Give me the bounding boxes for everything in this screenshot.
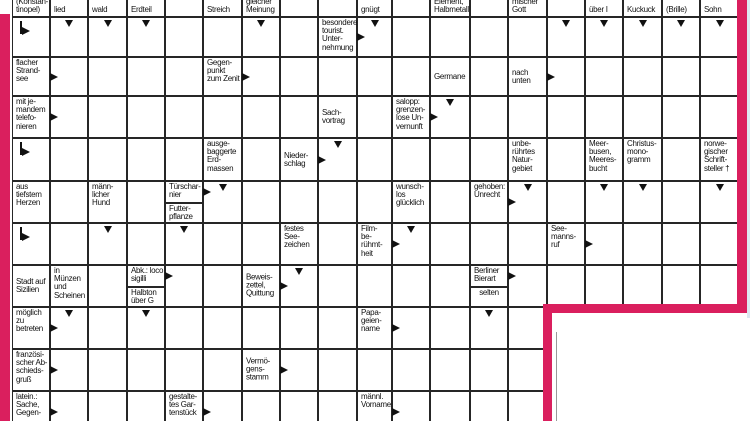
clue-cell-r7c2: inMünzenundScheinen (50, 265, 88, 307)
clue-cell-r9c7: Vermö-gens-stamm (242, 349, 280, 391)
answer-cell-r1c11[interactable] (392, 17, 430, 57)
clue-text: gleicherMeinung (246, 0, 279, 14)
answer-cell-r2c11[interactable] (392, 57, 430, 96)
answer-cell-r10c7[interactable] (242, 391, 280, 421)
down-arrow-icon (219, 184, 227, 191)
clue-cell-r4c16: Meer-busen,Meeres-bucht (585, 138, 623, 181)
answer-cell-r4c7[interactable] (242, 138, 280, 181)
answer-cell-r9c3[interactable] (88, 349, 127, 391)
answer-cell-r2c5[interactable] (165, 57, 203, 96)
clue-cell-r4c8: Nieder-schlag (280, 138, 318, 181)
answer-cell-r6c7[interactable] (242, 223, 280, 265)
right-arrow-icon (547, 73, 555, 81)
right-arrow-icon (508, 198, 516, 206)
answer-cell-r4c3[interactable] (88, 138, 127, 181)
answer-cell-r5c10[interactable] (357, 181, 392, 223)
down-arrow-icon (562, 20, 570, 27)
down-arrow-icon (716, 20, 724, 27)
clue-text: salopp:grenzen-lose Un-vernunft (396, 98, 429, 131)
clue-cell-r5c3: männ-licherHund (88, 181, 127, 223)
answer-cell-r10c11[interactable] (392, 391, 430, 421)
clue-text: Gegen-punktzum Zenit (207, 59, 241, 84)
split-clue-top: Abk.: locosigilli (128, 266, 164, 286)
down-arrow-icon (485, 310, 493, 317)
answer-cell-r7c18[interactable] (662, 265, 700, 307)
clue-text: besonderetourist.Unter-nehmung (322, 19, 356, 52)
clue-text: flacherStrand-see (16, 59, 49, 84)
answer-cell-r6c1[interactable] (12, 223, 50, 265)
answer-cell-r8c5[interactable] (165, 307, 203, 349)
clue-cell-r5c11: wunsch-losglücklich (392, 181, 430, 223)
answer-cell-r5c7[interactable] (242, 181, 280, 223)
clue-cell-r3c1: mit je-mandemtelefo-nieren (12, 96, 50, 138)
answer-cell-r7c9[interactable] (318, 265, 357, 307)
clue-text: mit je-mandemtelefo-nieren (16, 98, 49, 131)
page-fold-line (556, 332, 557, 421)
clue-text: Germane (434, 72, 469, 80)
answer-cell-r5c16[interactable] (585, 181, 623, 223)
down-arrow-icon (407, 226, 415, 233)
clue-text: wunsch-losglücklich (396, 183, 429, 208)
answer-cell-r3c17[interactable] (623, 96, 662, 138)
clue-cell-r0c12: Element,Halbmetall (430, 0, 470, 17)
answer-cell-r6c6[interactable] (203, 223, 242, 265)
answer-cell-r1c17[interactable] (623, 17, 662, 57)
answer-cell-r10c13[interactable] (470, 391, 508, 421)
clue-cell-r4c14: unbe-rührtesNatur-gebiet (508, 138, 547, 181)
clue-cell-r0c10: gnügt (357, 0, 392, 17)
answer-cell-r10c6[interactable] (203, 391, 242, 421)
clue-cell-r0c7: gleicherMeinung (242, 0, 280, 17)
down-arrow-icon (104, 20, 112, 27)
clue-cell-r4c19: norwe-gischerSchrift-steller † (700, 138, 740, 181)
answer-cell-r2c16[interactable] (585, 57, 623, 96)
answer-cell-r1c2[interactable] (50, 17, 88, 57)
clue-text: latein.:Sache,Gegen- (16, 393, 49, 418)
answer-cell-r7c11[interactable] (392, 265, 430, 307)
right-arrow-icon (165, 272, 173, 280)
answer-cell-r10c3[interactable] (88, 391, 127, 421)
clue-cell-r0c19: Sohn (700, 0, 740, 17)
puzzle-border-right (737, 0, 747, 313)
answer-cell-r8c6[interactable] (203, 307, 242, 349)
right-arrow-icon (280, 282, 288, 290)
clue-cell-r2c1: flacherStrand-see (12, 57, 50, 96)
clue-text: norwe-gischerSchrift-steller † (704, 140, 739, 173)
clue-cell-r1c9: besonderetourist.Unter-nehmung (318, 17, 357, 57)
answer-cell-r5c4[interactable] (127, 181, 165, 223)
clue-text: gestalte-tes Gar-tenstück (169, 393, 202, 418)
answer-cell-r2c3[interactable] (88, 57, 127, 96)
answer-cell-r2c18[interactable] (662, 57, 700, 96)
answer-cell-r1c18[interactable] (662, 17, 700, 57)
answer-cell-r0c9[interactable] (318, 0, 357, 17)
answer-cell-r5c17[interactable] (623, 181, 662, 223)
answer-cell-r10c4[interactable] (127, 391, 165, 421)
answer-cell-r9c4[interactable] (127, 349, 165, 391)
answer-cell-r10c9[interactable] (318, 391, 357, 421)
answer-cell-r6c4[interactable] (127, 223, 165, 265)
clue-cell-r0c14: mischerGott (508, 0, 547, 17)
answer-cell-r7c10[interactable] (357, 265, 392, 307)
clue-cell-r0c16: über I (585, 0, 623, 17)
puzzle-border-inner-horizontal (543, 304, 747, 313)
split-clue-top: BerlinerBierart (471, 266, 507, 286)
down-arrow-icon (371, 20, 379, 27)
clue-text: Film-be-rühmt-heit (361, 225, 391, 258)
right-arrow-icon (50, 408, 58, 416)
answer-cell-r4c15[interactable] (547, 138, 585, 181)
answer-cell-r7c17[interactable] (623, 265, 662, 307)
answer-cell-r6c18[interactable] (662, 223, 700, 265)
answer-cell-r8c3[interactable] (88, 307, 127, 349)
clue-text: Christus-mono-gramm (627, 140, 661, 165)
answer-cell-r3c4[interactable] (127, 96, 165, 138)
clue-cell-r0c17: Kuckuck (623, 0, 662, 17)
right-arrow-icon (392, 408, 400, 416)
answer-cell-r5c18[interactable] (662, 181, 700, 223)
puzzle-border-left (0, 14, 10, 421)
answer-cell-r1c15[interactable] (547, 17, 585, 57)
right-arrow-icon (203, 408, 211, 416)
clue-cell-r6c8: festesSee-zeichen (280, 223, 318, 265)
down-arrow-icon (524, 184, 532, 191)
answer-cell-r3c6[interactable] (203, 96, 242, 138)
answer-cell-r8c13[interactable] (470, 307, 508, 349)
down-arrow-icon (65, 310, 73, 317)
answer-cell-r6c5[interactable] (165, 223, 203, 265)
answer-cell-r1c12[interactable] (430, 17, 470, 57)
bent-arrow-icon (19, 141, 39, 161)
split-clue-bottom: Futter-pflanze (166, 202, 202, 222)
answer-cell-r0c11[interactable] (392, 0, 430, 17)
answer-cell-r0c8[interactable] (280, 0, 318, 17)
clue-cell-r7c7: Beweis-zettel,Quittung (242, 265, 280, 307)
clue-cell-r9c1: französi-scher Ab-schieds-gruß (12, 349, 50, 391)
answer-cell-r9c14[interactable] (508, 349, 547, 391)
down-arrow-icon (142, 310, 150, 317)
clue-text: Nieder-schlag (284, 151, 317, 167)
answer-cell-r7c12[interactable] (430, 265, 470, 307)
bent-arrow-head (22, 27, 30, 35)
right-arrow-icon (280, 366, 288, 374)
split-clue-cell-r5c5: Türschar-nierFutter-pflanze (165, 181, 203, 223)
answer-cell-r8c12[interactable] (430, 307, 470, 349)
answer-cell-r10c12[interactable] (430, 391, 470, 421)
clue-text: über I (589, 6, 622, 14)
clue-text: ausge-baggerteErd-massen (207, 140, 241, 173)
crossword-puzzle: (Konstan-tinopel)liedwaldErdteilStreichg… (0, 0, 750, 421)
clue-text: BerlinerBierart (474, 267, 507, 283)
answer-cell-r8c14[interactable] (508, 307, 547, 349)
right-arrow-icon (50, 324, 58, 332)
answer-cell-r8c7[interactable] (242, 307, 280, 349)
clue-text: selten (471, 289, 507, 297)
answer-cell-r3c15[interactable] (547, 96, 585, 138)
clue-cell-r3c11: salopp:grenzen-lose Un-vernunft (392, 96, 430, 138)
down-arrow-icon (65, 20, 73, 27)
clue-text: nachunten (512, 68, 546, 84)
clue-cell-r10c5: gestalte-tes Gar-tenstück (165, 391, 203, 421)
clue-text: möglichzubetreten (16, 309, 49, 334)
clue-text: inMünzenundScheinen (54, 267, 87, 300)
answer-cell-r9c13[interactable] (470, 349, 508, 391)
clue-text: Stadt aufSizilien (16, 278, 49, 294)
answer-cell-r9c12[interactable] (430, 349, 470, 391)
right-arrow-icon (357, 33, 365, 41)
clue-text: See-manns-ruf (551, 225, 584, 250)
answer-cell-r6c12[interactable] (430, 223, 470, 265)
answer-cell-r10c2[interactable] (50, 391, 88, 421)
answer-cell-r4c4[interactable] (127, 138, 165, 181)
clue-cell-r2c6: Gegen-punktzum Zenit (203, 57, 242, 96)
down-arrow-icon (716, 184, 724, 191)
right-arrow-icon (392, 240, 400, 248)
answer-cell-r9c11[interactable] (392, 349, 430, 391)
clue-text: gnügt (361, 6, 391, 14)
answer-cell-r6c14[interactable] (508, 223, 547, 265)
split-clue-cell-r7c4: Abk.: locosigilliHalbtonüber G (127, 265, 165, 307)
clue-text: austiefstemHerzen (16, 183, 49, 208)
answer-cell-r2c9[interactable] (318, 57, 357, 96)
answer-cell-r6c17[interactable] (623, 223, 662, 265)
clue-cell-r4c6: ausge-baggerteErd-massen (203, 138, 242, 181)
clue-text: Sohn (704, 6, 739, 14)
answer-cell-r4c12[interactable] (430, 138, 470, 181)
right-arrow-icon (392, 324, 400, 332)
answer-cell-r8c8[interactable] (280, 307, 318, 349)
clue-text: männ-licherHund (92, 183, 126, 208)
right-arrow-icon (50, 366, 58, 374)
answer-cell-r1c6[interactable] (203, 17, 242, 57)
answer-cell-r5c9[interactable] (318, 181, 357, 223)
answer-cell-r8c9[interactable] (318, 307, 357, 349)
clue-text: wald (92, 6, 126, 14)
answer-cell-r3c7[interactable] (242, 96, 280, 138)
clue-text: festesSee-zeichen (284, 225, 317, 250)
answer-cell-r7c6[interactable] (203, 265, 242, 307)
answer-cell-r9c9[interactable] (318, 349, 357, 391)
clue-cell-r0c1: (Konstan-tinopel) (12, 0, 50, 17)
answer-cell-r3c19[interactable] (700, 96, 740, 138)
answer-cell-r10c8[interactable] (280, 391, 318, 421)
answer-cell-r9c5[interactable] (165, 349, 203, 391)
clue-text: Beweis-zettel,Quittung (246, 274, 279, 299)
clue-cell-r2c12: Germane (430, 57, 470, 96)
down-arrow-icon (446, 99, 454, 106)
answer-cell-r0c5[interactable] (165, 0, 203, 17)
answer-cell-r2c19[interactable] (700, 57, 740, 96)
answer-cell-r2c13[interactable] (470, 57, 508, 96)
answer-cell-r1c3[interactable] (88, 17, 127, 57)
clue-cell-r2c14: nachunten (508, 57, 547, 96)
answer-cell-r0c13[interactable] (470, 0, 508, 17)
clue-text: unbe-rührtesNatur-gebiet (512, 140, 546, 173)
clue-cell-r10c10: männl.Vorname (357, 391, 392, 421)
answer-cell-r4c13[interactable] (470, 138, 508, 181)
answer-cell-r4c18[interactable] (662, 138, 700, 181)
answer-cell-r6c2[interactable] (50, 223, 88, 265)
split-clue-cell-r7c13: BerlinerBierartselten (470, 265, 508, 307)
clue-text: (Konstan-tinopel) (16, 0, 49, 14)
puzzle-border-inner-vertical (543, 304, 552, 421)
answer-cell-r5c12[interactable] (430, 181, 470, 223)
answer-cell-r4c10[interactable] (357, 138, 392, 181)
clue-text: Element,Halbmetall (434, 0, 469, 14)
answer-cell-r10c14[interactable] (508, 391, 547, 421)
clue-cell-r0c2: lied (50, 0, 88, 17)
answer-cell-r7c15[interactable] (547, 265, 585, 307)
clue-text: Papa-geien-name (361, 309, 391, 334)
answer-cell-r8c4[interactable] (127, 307, 165, 349)
answer-cell-r3c16[interactable] (585, 96, 623, 138)
answer-cell-r6c13[interactable] (470, 223, 508, 265)
clue-text: Kuckuck (627, 6, 661, 14)
answer-cell-r1c1[interactable] (12, 17, 50, 57)
right-arrow-icon (318, 156, 326, 164)
right-arrow-icon (508, 272, 516, 280)
answer-cell-r1c13[interactable] (470, 17, 508, 57)
answer-cell-r4c5[interactable] (165, 138, 203, 181)
answer-cell-r1c5[interactable] (165, 17, 203, 57)
answer-cell-r7c3[interactable] (88, 265, 127, 307)
answer-cell-r1c19[interactable] (700, 17, 740, 57)
split-clue-bottom: Halbtonüber G (128, 286, 164, 306)
clue-text: (Brille) (666, 6, 699, 14)
answer-cell-r7c16[interactable] (585, 265, 623, 307)
clue-cell-r0c18: (Brille) (662, 0, 700, 17)
clue-text: Vermö-gens-stamm (246, 358, 279, 383)
answer-cell-r5c15[interactable] (547, 181, 585, 223)
clue-text: Sach-vortrag (322, 109, 356, 125)
clue-cell-r0c6: Streich (203, 0, 242, 17)
clue-text: Halbtonüber G (131, 289, 164, 305)
down-arrow-icon (295, 268, 303, 275)
down-arrow-icon (180, 226, 188, 233)
clue-text: gehoben:Unrecht (474, 183, 507, 199)
clue-text: männl.Vorname (361, 393, 391, 409)
answer-cell-r1c8[interactable] (280, 17, 318, 57)
answer-cell-r3c14[interactable] (508, 96, 547, 138)
clue-text: Meer-busen,Meeres-bucht (589, 140, 622, 173)
answer-cell-r3c3[interactable] (88, 96, 127, 138)
answer-cell-r5c8[interactable] (280, 181, 318, 223)
answer-cell-r3c8[interactable] (280, 96, 318, 138)
answer-cell-r2c4[interactable] (127, 57, 165, 96)
answer-cell-r1c7[interactable] (242, 17, 280, 57)
bent-arrow-icon (19, 226, 39, 246)
clue-text: Türschar-nier (169, 183, 202, 199)
clue-text: Erdteil (131, 6, 164, 14)
answer-cell-r6c19[interactable] (700, 223, 740, 265)
right-arrow-icon (242, 73, 250, 81)
clue-cell-r5c13: gehoben:Unrecht (470, 181, 508, 223)
clue-cell-r6c15: See-manns-ruf (547, 223, 585, 265)
clue-cell-r6c10: Film-be-rühmt-heit (357, 223, 392, 265)
answer-cell-r1c16[interactable] (585, 17, 623, 57)
answer-cell-r4c11[interactable] (392, 138, 430, 181)
answer-cell-r4c2[interactable] (50, 138, 88, 181)
clue-cell-r7c1: Stadt aufSizilien (12, 265, 50, 307)
answer-cell-r5c2[interactable] (50, 181, 88, 223)
answer-cell-r3c5[interactable] (165, 96, 203, 138)
right-arrow-icon (50, 113, 58, 121)
bent-arrow-icon (19, 20, 39, 40)
answer-cell-r5c19[interactable] (700, 181, 740, 223)
answer-cell-r3c13[interactable] (470, 96, 508, 138)
clue-cell-r0c4: Erdteil (127, 0, 165, 17)
down-arrow-icon (104, 226, 112, 233)
clue-cell-r8c1: möglichzubetreten (12, 307, 50, 349)
answer-cell-r9c6[interactable] (203, 349, 242, 391)
answer-cell-r3c10[interactable] (357, 96, 392, 138)
answer-cell-r3c18[interactable] (662, 96, 700, 138)
right-arrow-icon (585, 240, 593, 248)
down-arrow-icon (600, 184, 608, 191)
down-arrow-icon (677, 20, 685, 27)
right-arrow-icon (50, 73, 58, 81)
answer-cell-r7c19[interactable] (700, 265, 740, 307)
clue-text: französi-scher Ab-schieds-gruß (16, 351, 49, 384)
answer-cell-r2c10[interactable] (357, 57, 392, 96)
answer-cell-r0c15[interactable] (547, 0, 585, 17)
answer-cell-r4c1[interactable] (12, 138, 50, 181)
clue-text: Streich (207, 6, 241, 14)
answer-cell-r2c17[interactable] (623, 57, 662, 96)
right-arrow-icon (430, 113, 438, 121)
clue-text: Futter-pflanze (169, 205, 202, 221)
answer-cell-r6c3[interactable] (88, 223, 127, 265)
down-arrow-icon (639, 184, 647, 191)
bent-arrow-head (22, 148, 30, 156)
answer-cell-r6c9[interactable] (318, 223, 357, 265)
clue-cell-r4c17: Christus-mono-gramm (623, 138, 662, 181)
clue-cell-r0c3: wald (88, 0, 127, 17)
down-arrow-icon (639, 20, 647, 27)
answer-cell-r2c8[interactable] (280, 57, 318, 96)
clue-cell-r5c1: austiefstemHerzen (12, 181, 50, 223)
clue-cell-r10c1: latein.:Sache,Gegen- (12, 391, 50, 421)
clue-text: lied (54, 6, 87, 14)
clue-text: Abk.: locosigilli (131, 267, 164, 283)
split-clue-top: Türschar-nier (166, 182, 202, 202)
down-arrow-icon (600, 20, 608, 27)
clue-text: mischerGott (512, 0, 546, 14)
bent-arrow-head (22, 233, 30, 241)
down-arrow-icon (142, 20, 150, 27)
answer-cell-r9c10[interactable] (357, 349, 392, 391)
clue-cell-r3c9: Sach-vortrag (318, 96, 357, 138)
right-arrow-icon (203, 188, 211, 196)
split-clue-bottom: selten (471, 286, 507, 306)
down-arrow-icon (334, 141, 342, 148)
answer-cell-r1c4[interactable] (127, 17, 165, 57)
clue-cell-r8c10: Papa-geien-name (357, 307, 392, 349)
down-arrow-icon (257, 20, 265, 27)
answer-cell-r1c14[interactable] (508, 17, 547, 57)
